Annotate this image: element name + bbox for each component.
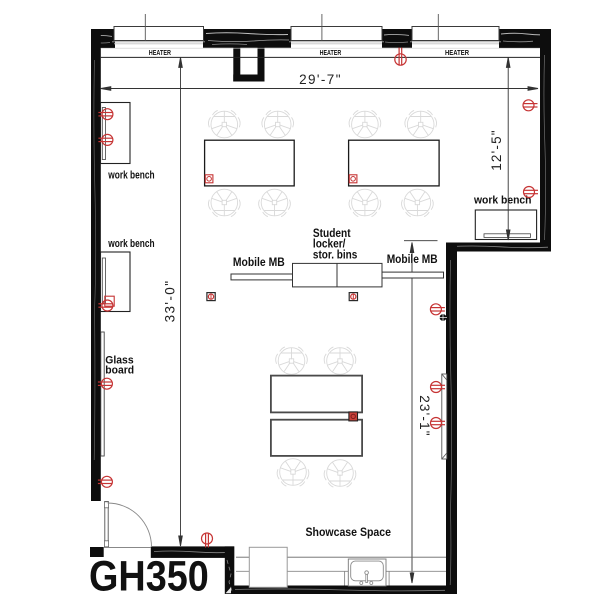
svg-text:Mobile MB: Mobile MB (233, 257, 285, 269)
svg-text:33'-0": 33'-0" (163, 280, 178, 323)
svg-text:board: board (105, 364, 134, 376)
svg-text:HEATER: HEATER (445, 49, 469, 57)
svg-text:GH350: GH350 (89, 553, 209, 601)
svg-text:stor. bins: stor. bins (313, 249, 357, 261)
svg-text:work bench: work bench (108, 170, 155, 182)
svg-text:12'-5": 12'-5" (489, 129, 504, 171)
svg-text:work bench: work bench (108, 238, 155, 250)
svg-text:29'-7": 29'-7" (299, 72, 342, 87)
svg-text:HEATER: HEATER (149, 49, 171, 57)
svg-text:HEATER: HEATER (320, 49, 342, 57)
svg-text:Showcase Space: Showcase Space (306, 525, 392, 539)
svg-text:Mobile MB: Mobile MB (387, 254, 438, 266)
svg-text:23'-1": 23'-1" (417, 395, 432, 437)
svg-text:work bench: work bench (473, 194, 532, 206)
